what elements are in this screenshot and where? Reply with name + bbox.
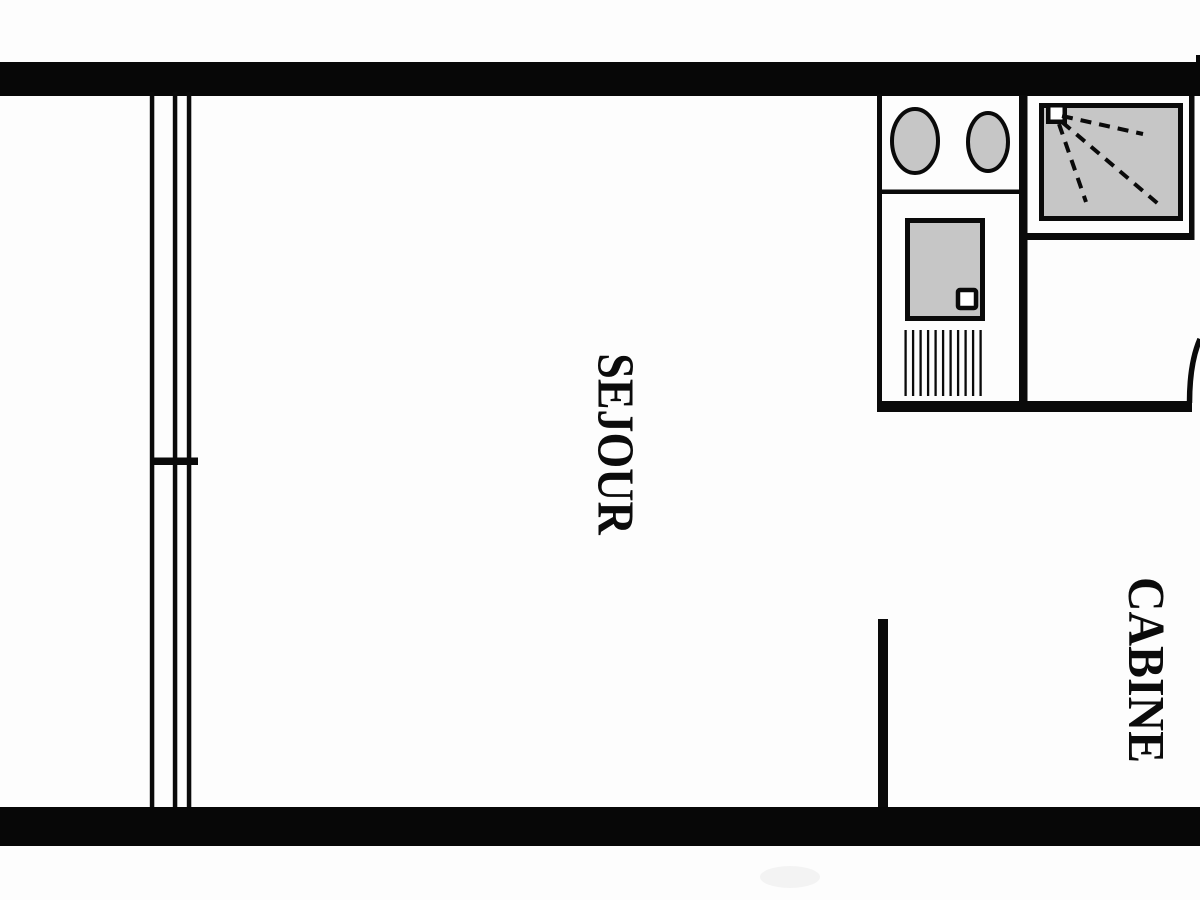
svg-text:SEJOUR: SEJOUR: [587, 353, 645, 535]
svg-text:CABINE: CABINE: [1118, 577, 1176, 763]
